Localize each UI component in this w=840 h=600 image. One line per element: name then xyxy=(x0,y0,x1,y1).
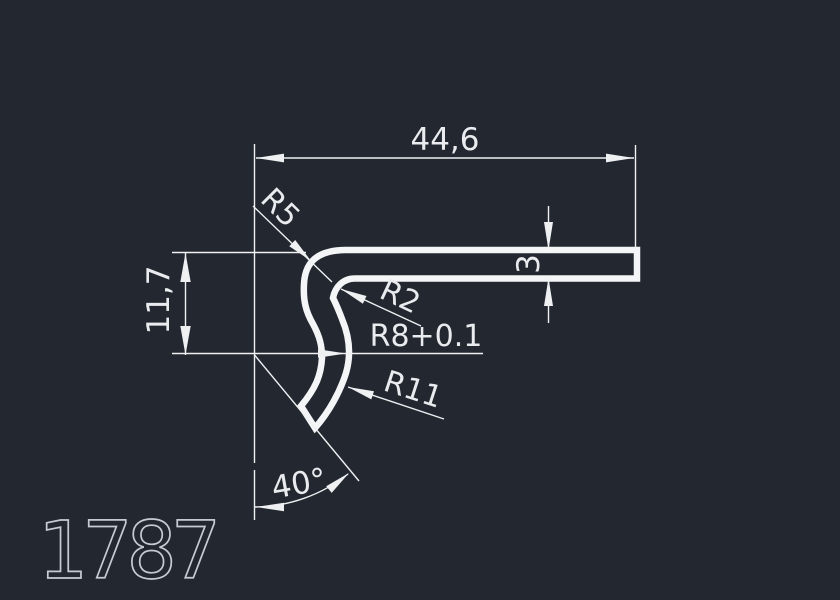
leader-r11-text: R11 xyxy=(380,364,447,416)
dim-length: 44,6 xyxy=(256,122,634,162)
dim-length-text: 44,6 xyxy=(410,122,479,158)
dim-angle-text: 40° xyxy=(269,462,329,507)
leader-r5-arrow xyxy=(289,240,311,261)
dim-height: 11,7 xyxy=(141,253,191,355)
dim-height-arrow-bottom xyxy=(180,326,190,355)
dim-length-arrow-left xyxy=(256,154,284,163)
dim-height-arrow-top xyxy=(180,253,190,282)
dim-length-arrow-right xyxy=(606,154,634,163)
leader-r8-text: R8+0.1 xyxy=(370,319,483,354)
cad-viewport: 44,6 11,7 3 R5 R2 xyxy=(0,0,840,600)
leader-r11: R11 xyxy=(348,364,446,419)
leader-r2-arrow xyxy=(341,289,367,304)
leader-r11-arrow xyxy=(348,387,374,399)
dim-thickness-text: 3 xyxy=(511,254,547,274)
dim-thickness: 3 xyxy=(511,206,553,323)
cad-drawing: 44,6 11,7 3 R5 R2 xyxy=(0,0,840,600)
dim-angle: 40° xyxy=(255,462,350,512)
leader-r8-arrow xyxy=(318,349,346,358)
dim-thickness-arrow-bottom xyxy=(544,278,553,306)
leader-r5: R5 xyxy=(253,182,332,282)
dim-thickness-arrow-top xyxy=(544,222,553,250)
part-number-text: 1787 xyxy=(38,505,215,597)
dim-height-text: 11,7 xyxy=(141,265,177,334)
leader-r5-text: R5 xyxy=(254,182,307,235)
dim-angle-arrow-right xyxy=(326,473,349,493)
